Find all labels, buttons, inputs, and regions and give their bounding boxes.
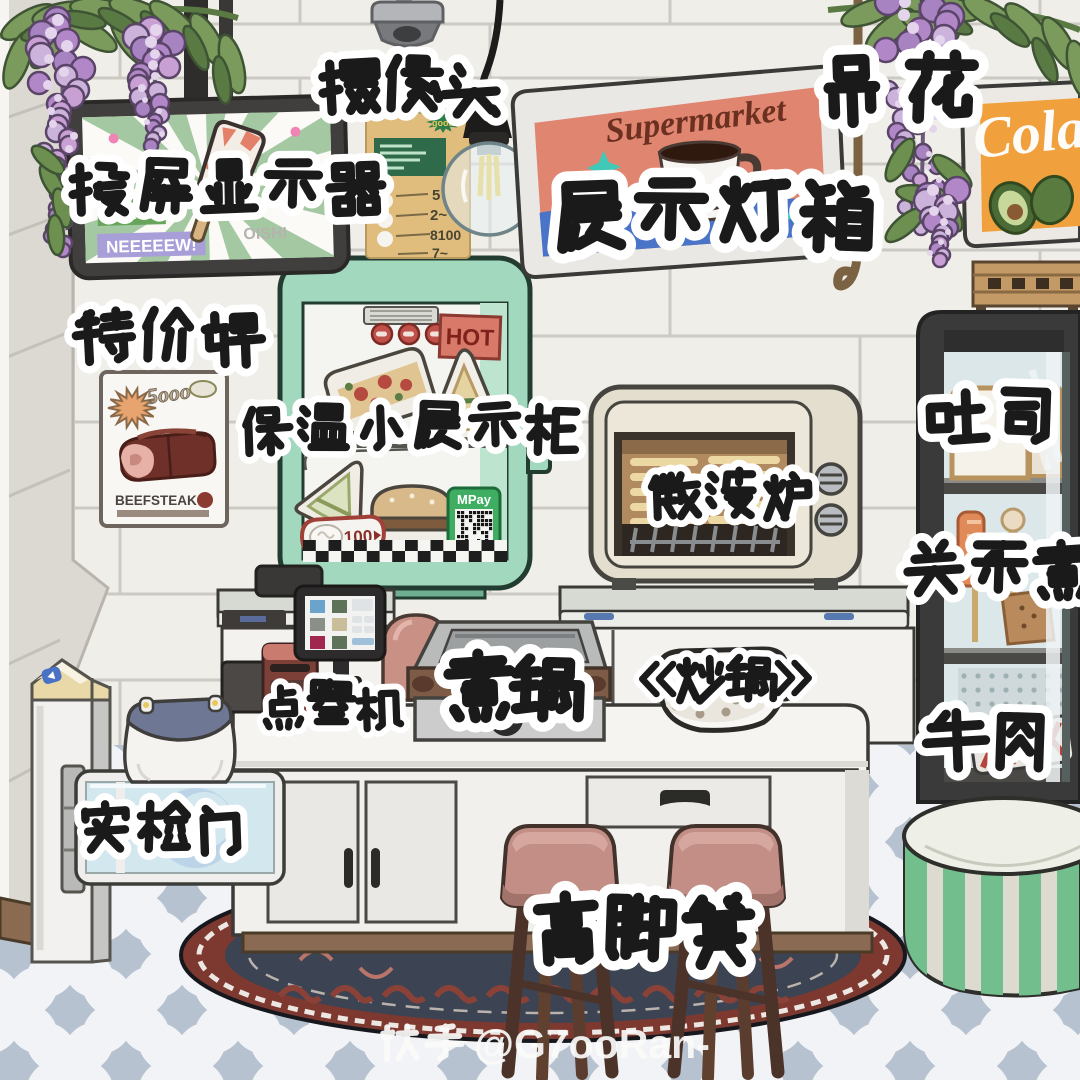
svg-text:7~: 7~ xyxy=(432,245,448,261)
svg-text:Cola: Cola xyxy=(970,95,1080,171)
svg-text:NEEEEEW!: NEEEEEW! xyxy=(106,235,197,256)
svg-text:BEEFSTEAK: BEEFSTEAK xyxy=(115,493,197,508)
svg-text:OISHI: OISHI xyxy=(243,225,287,243)
svg-text:8100: 8100 xyxy=(430,227,461,243)
svg-text:@G7ooRan-: @G7ooRan- xyxy=(474,1021,710,1067)
svg-text:5: 5 xyxy=(432,187,440,204)
svg-text:MPay: MPay xyxy=(457,492,492,507)
svg-text:HOT: HOT xyxy=(445,323,494,351)
svg-text:2~: 2~ xyxy=(430,207,447,224)
